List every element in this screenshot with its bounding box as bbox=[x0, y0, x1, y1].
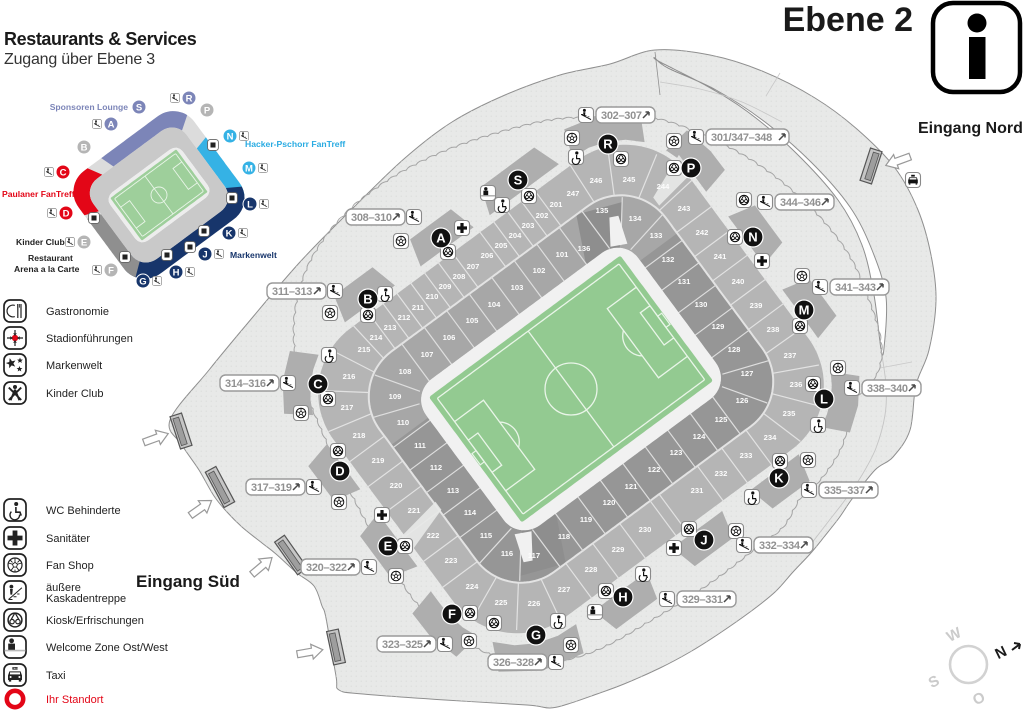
svg-text:J: J bbox=[700, 533, 707, 548]
svg-text:Markenwelt: Markenwelt bbox=[230, 250, 277, 260]
svg-text:222: 222 bbox=[427, 531, 440, 540]
svg-text:246: 246 bbox=[590, 176, 603, 185]
svg-text:120: 120 bbox=[603, 498, 616, 507]
svg-text:243: 243 bbox=[678, 204, 691, 213]
svg-text:311–313: 311–313 bbox=[272, 286, 312, 298]
svg-text:O: O bbox=[970, 689, 988, 710]
svg-text:J: J bbox=[202, 250, 207, 261]
svg-text:219: 219 bbox=[372, 456, 385, 465]
svg-text:E: E bbox=[81, 238, 87, 249]
svg-text:125: 125 bbox=[715, 415, 728, 424]
svg-text:Ihr Standort: Ihr Standort bbox=[46, 694, 103, 706]
svg-text:Hacker-Pschorr FanTreff: Hacker-Pschorr FanTreff bbox=[245, 139, 345, 149]
svg-text:202: 202 bbox=[536, 211, 549, 220]
svg-text:231: 231 bbox=[691, 486, 704, 495]
svg-text:Sponsoren Lounge: Sponsoren Lounge bbox=[50, 102, 129, 112]
svg-text:M: M bbox=[245, 164, 253, 175]
svg-text:Zugang über Ebene 3: Zugang über Ebene 3 bbox=[4, 51, 155, 68]
svg-text:107: 107 bbox=[421, 350, 434, 359]
svg-text:L: L bbox=[820, 392, 828, 407]
svg-text:Paulaner FanTreff: Paulaner FanTreff bbox=[2, 189, 75, 199]
svg-text:104: 104 bbox=[488, 300, 501, 309]
svg-text:Sanitäter: Sanitäter bbox=[46, 533, 90, 545]
svg-text:118: 118 bbox=[558, 532, 570, 541]
svg-text:240: 240 bbox=[732, 277, 745, 286]
svg-text:301/347–348: 301/347–348 bbox=[711, 132, 772, 144]
svg-text:F: F bbox=[448, 607, 456, 622]
svg-text:116: 116 bbox=[501, 549, 513, 558]
svg-text:323–325: 323–325 bbox=[382, 639, 423, 651]
svg-text:245: 245 bbox=[623, 175, 636, 184]
svg-text:308–310: 308–310 bbox=[351, 212, 392, 224]
svg-text:232: 232 bbox=[715, 469, 728, 478]
svg-text:135: 135 bbox=[596, 206, 609, 215]
svg-text:213: 213 bbox=[384, 323, 397, 332]
svg-text:G: G bbox=[531, 628, 541, 643]
svg-text:326–328: 326–328 bbox=[493, 657, 534, 669]
svg-text:233: 233 bbox=[740, 451, 753, 460]
svg-text:110: 110 bbox=[397, 418, 409, 427]
svg-text:236: 236 bbox=[790, 380, 803, 389]
svg-text:Stadionführungen: Stadionführungen bbox=[46, 333, 133, 345]
svg-text:R: R bbox=[603, 137, 613, 152]
svg-text:216: 216 bbox=[343, 372, 356, 381]
svg-text:230: 230 bbox=[639, 525, 652, 534]
svg-text:225: 225 bbox=[495, 598, 508, 607]
svg-text:314–316: 314–316 bbox=[225, 378, 266, 390]
svg-text:235: 235 bbox=[783, 409, 796, 418]
svg-text:317–319: 317–319 bbox=[251, 482, 292, 494]
svg-text:K: K bbox=[226, 229, 233, 240]
svg-text:210: 210 bbox=[426, 292, 439, 301]
svg-text:234: 234 bbox=[764, 433, 777, 442]
svg-text:129: 129 bbox=[712, 322, 725, 331]
svg-text:332–334: 332–334 bbox=[759, 540, 801, 552]
svg-text:209: 209 bbox=[439, 282, 452, 291]
svg-text:113: 113 bbox=[447, 486, 459, 495]
svg-text:Restaurants & Services: Restaurants & Services bbox=[4, 29, 197, 49]
svg-text:102: 102 bbox=[533, 266, 546, 275]
svg-text:Welcome Zone Ost/West: Welcome Zone Ost/West bbox=[46, 642, 168, 654]
svg-text:221: 221 bbox=[408, 506, 421, 515]
svg-text:302–307: 302–307 bbox=[601, 110, 642, 122]
svg-text:Taxi: Taxi bbox=[46, 670, 66, 682]
svg-text:122: 122 bbox=[648, 465, 661, 474]
svg-text:D: D bbox=[335, 464, 344, 479]
svg-text:203: 203 bbox=[522, 221, 535, 230]
svg-text:124: 124 bbox=[693, 432, 706, 441]
svg-text:205: 205 bbox=[495, 241, 508, 250]
svg-text:133: 133 bbox=[650, 231, 663, 240]
svg-text:131: 131 bbox=[678, 277, 691, 286]
svg-text:123: 123 bbox=[670, 448, 683, 457]
svg-text:G: G bbox=[139, 277, 146, 288]
svg-text:Eingang Süd: Eingang Süd bbox=[136, 572, 240, 591]
svg-text:132: 132 bbox=[662, 255, 675, 264]
svg-text:109: 109 bbox=[389, 392, 402, 401]
svg-text:Arena a la Carte: Arena a la Carte bbox=[14, 264, 80, 274]
svg-text:M: M bbox=[799, 303, 810, 318]
svg-text:223: 223 bbox=[445, 556, 458, 565]
svg-text:341–343: 341–343 bbox=[835, 282, 876, 294]
svg-text:121: 121 bbox=[625, 482, 638, 491]
svg-text:134: 134 bbox=[629, 214, 642, 223]
svg-text:115: 115 bbox=[480, 531, 493, 540]
svg-text:335–337: 335–337 bbox=[824, 485, 865, 497]
svg-text:W: W bbox=[944, 624, 965, 646]
svg-text:338–340: 338–340 bbox=[867, 383, 908, 395]
svg-text:H: H bbox=[173, 268, 180, 279]
svg-text:N: N bbox=[748, 230, 757, 245]
svg-text:F: F bbox=[108, 266, 114, 277]
svg-text:208: 208 bbox=[453, 272, 466, 281]
svg-text:228: 228 bbox=[585, 565, 598, 574]
svg-text:114: 114 bbox=[464, 508, 477, 517]
svg-text:237: 237 bbox=[784, 351, 797, 360]
svg-text:320–322: 320–322 bbox=[306, 562, 347, 574]
svg-text:214: 214 bbox=[370, 333, 383, 342]
svg-text:238: 238 bbox=[767, 325, 780, 334]
svg-text:108: 108 bbox=[399, 367, 412, 376]
svg-text:K: K bbox=[774, 471, 784, 486]
svg-text:211: 211 bbox=[412, 303, 425, 312]
svg-text:206: 206 bbox=[481, 251, 494, 260]
svg-text:329–331: 329–331 bbox=[682, 594, 723, 606]
svg-text:S: S bbox=[136, 103, 142, 114]
svg-text:Kiosk/Erfrischungen: Kiosk/Erfrischungen bbox=[46, 615, 144, 627]
svg-text:224: 224 bbox=[466, 582, 479, 591]
svg-text:344–346: 344–346 bbox=[780, 197, 821, 209]
svg-text:A: A bbox=[436, 231, 446, 246]
svg-text:218: 218 bbox=[353, 431, 366, 440]
svg-text:P: P bbox=[687, 161, 696, 176]
svg-text:R: R bbox=[186, 94, 193, 105]
svg-text:Restaurant: Restaurant bbox=[28, 253, 73, 263]
svg-text:N: N bbox=[227, 132, 234, 143]
svg-text:212: 212 bbox=[398, 313, 411, 322]
svg-text:117: 117 bbox=[528, 551, 540, 560]
svg-text:Eingang Nord: Eingang Nord bbox=[918, 120, 1023, 137]
svg-text:WC Behinderte: WC Behinderte bbox=[46, 505, 121, 517]
svg-text:Ebene 2: Ebene 2 bbox=[783, 1, 913, 39]
svg-text:239: 239 bbox=[750, 301, 763, 310]
svg-text:Fan Shop: Fan Shop bbox=[46, 560, 94, 572]
svg-text:229: 229 bbox=[612, 545, 625, 554]
svg-text:B: B bbox=[363, 292, 372, 307]
svg-text:215: 215 bbox=[358, 345, 371, 354]
svg-text:127: 127 bbox=[741, 369, 754, 378]
svg-text:Kinder Club: Kinder Club bbox=[16, 237, 65, 247]
svg-text:244: 244 bbox=[657, 182, 670, 191]
svg-text:101: 101 bbox=[556, 250, 569, 259]
svg-text:106: 106 bbox=[443, 333, 456, 342]
svg-text:112: 112 bbox=[430, 463, 442, 472]
svg-text:111: 111 bbox=[414, 441, 427, 450]
svg-text:119: 119 bbox=[580, 515, 592, 524]
svg-text:226: 226 bbox=[528, 599, 541, 608]
svg-text:S: S bbox=[514, 173, 523, 188]
svg-text:217: 217 bbox=[341, 403, 354, 412]
svg-text:136: 136 bbox=[578, 244, 591, 253]
svg-text:130: 130 bbox=[695, 300, 708, 309]
svg-text:207: 207 bbox=[467, 262, 480, 271]
svg-text:126: 126 bbox=[736, 396, 749, 405]
svg-text:105: 105 bbox=[466, 316, 479, 325]
svg-text:N: N bbox=[992, 643, 1009, 663]
svg-text:227: 227 bbox=[558, 585, 571, 594]
svg-text:B: B bbox=[81, 143, 88, 154]
svg-text:Kinder Club: Kinder Club bbox=[46, 388, 103, 400]
svg-text:242: 242 bbox=[696, 228, 709, 237]
svg-text:201: 201 bbox=[550, 200, 563, 209]
svg-text:247: 247 bbox=[567, 189, 580, 198]
svg-text:204: 204 bbox=[509, 231, 522, 240]
svg-text:Markenwelt: Markenwelt bbox=[46, 360, 102, 372]
svg-text:D: D bbox=[63, 209, 70, 220]
svg-text:H: H bbox=[618, 590, 627, 605]
svg-text:220: 220 bbox=[390, 481, 403, 490]
svg-text:L: L bbox=[247, 200, 253, 211]
svg-text:E: E bbox=[384, 539, 393, 554]
svg-text:S: S bbox=[926, 672, 942, 692]
svg-text:128: 128 bbox=[728, 345, 741, 354]
svg-text:241: 241 bbox=[714, 252, 727, 261]
svg-text:C: C bbox=[313, 377, 323, 392]
svg-text:A: A bbox=[108, 120, 115, 131]
svg-text:Gastronomie: Gastronomie bbox=[46, 306, 109, 318]
svg-text:C: C bbox=[60, 168, 67, 179]
svg-text:P: P bbox=[204, 106, 211, 117]
svg-text:103: 103 bbox=[511, 283, 524, 292]
svg-text:Kaskadentreppe: Kaskadentreppe bbox=[46, 593, 126, 605]
